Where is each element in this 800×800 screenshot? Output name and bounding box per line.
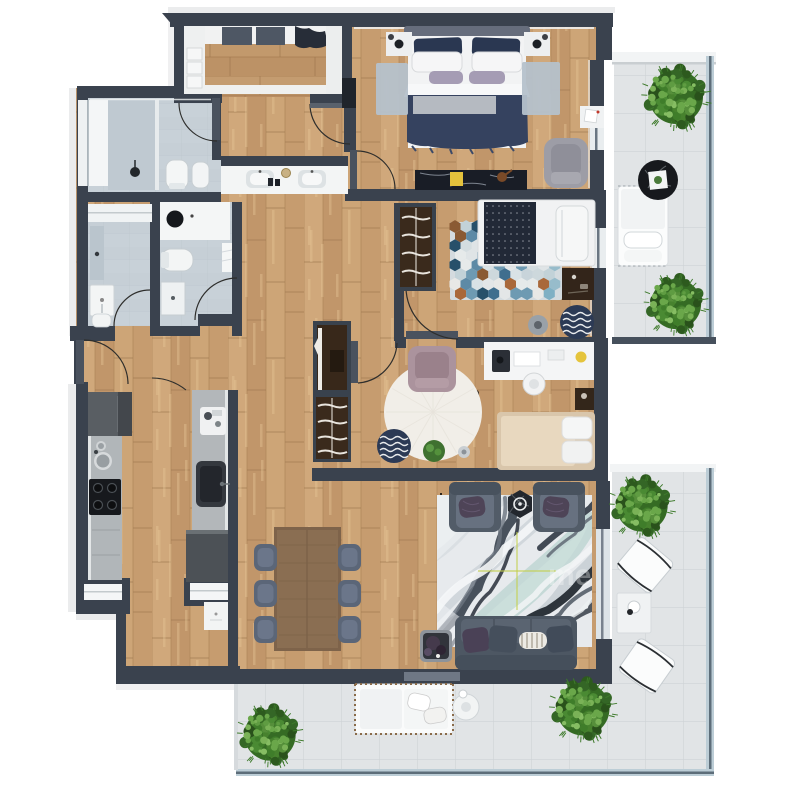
svg-text:me: me: [548, 559, 591, 592]
